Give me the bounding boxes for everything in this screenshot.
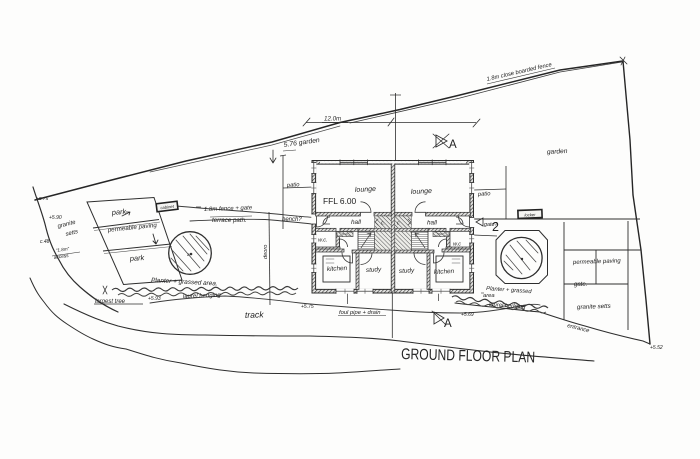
svg-text:gate.: gate. [574, 282, 587, 288]
svg-text:+5.75: +5.75 [301, 304, 314, 310]
svg-text:+5.69: +5.69 [461, 312, 474, 318]
svg-text:c.48: c.48 [40, 239, 50, 245]
svg-text:GROUND FLOOR PLAN: GROUND FLOOR PLAN [401, 346, 535, 367]
svg-text:+5.75: +5.75 [36, 196, 48, 202]
svg-text:+5.90: +5.90 [49, 215, 62, 221]
svg-text:bench?: bench? [282, 217, 302, 223]
svg-text:+5.93: +5.93 [148, 296, 161, 302]
svg-text:FFL 6.00: FFL 6.00 [323, 196, 357, 206]
svg-text:study: study [366, 266, 382, 274]
svg-text:kitchen: kitchen [327, 265, 348, 273]
svg-text:locker: locker [524, 212, 536, 217]
svg-text:hall: hall [427, 220, 438, 227]
svg-text:w.c: w.c [453, 242, 461, 248]
svg-text:deoro: deoro [263, 245, 269, 259]
svg-text:hall: hall [351, 219, 362, 226]
svg-text:A: A [444, 318, 452, 330]
svg-text:+5.52: +5.52 [650, 345, 663, 351]
svg-text:granite setts: granite setts [577, 303, 611, 311]
svg-text:terrace path.: terrace path. [212, 217, 247, 224]
svg-text:lounge: lounge [355, 186, 376, 194]
svg-text:garden: garden [547, 148, 568, 156]
svg-text:2: 2 [492, 220, 499, 234]
svg-text:park: park [129, 253, 145, 263]
svg-text:A: A [449, 139, 457, 151]
svg-text:kitchen: kitchen [434, 268, 455, 276]
svg-text:foul pipe + drain: foul pipe + drain [339, 310, 380, 316]
svg-text:patio: patio [286, 182, 301, 189]
svg-text:12.0m: 12.0m [324, 116, 341, 123]
svg-text:area: area [483, 293, 495, 299]
svg-text:park: park [110, 207, 126, 217]
svg-text:study: study [399, 267, 415, 275]
svg-text:track: track [245, 309, 265, 320]
svg-text:w.c.: w.c. [318, 238, 328, 244]
svg-text:c.: c. [381, 221, 385, 227]
svg-text:lounge: lounge [411, 188, 432, 196]
svg-text:patio: patio [477, 191, 492, 198]
